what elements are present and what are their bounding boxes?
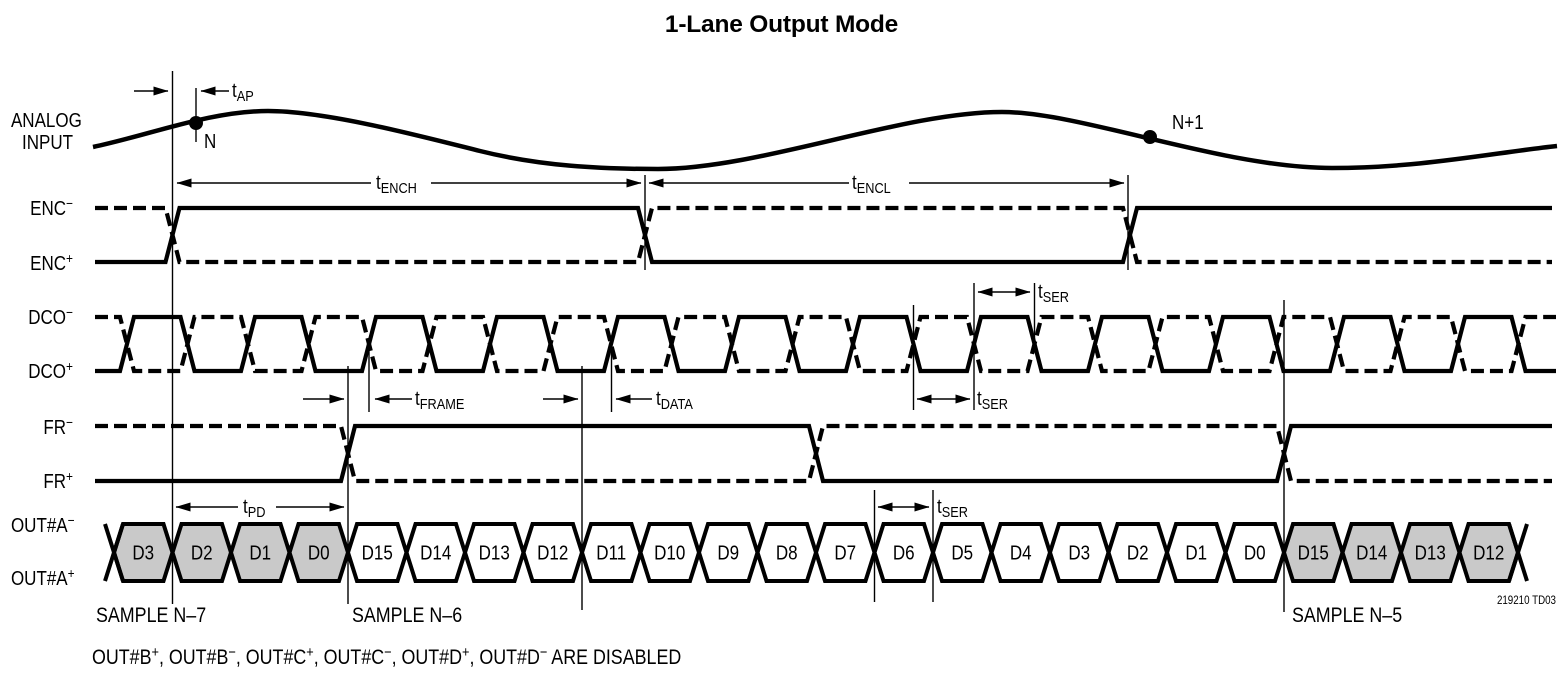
- bus-cell-label: D1: [1185, 541, 1207, 564]
- analog-waveform: [93, 111, 1557, 169]
- bus-cell-label: D3: [1068, 541, 1090, 564]
- note-superscript: +: [306, 644, 313, 661]
- signal-label-outa-minus: OUT#A−: [11, 513, 73, 540]
- bus-cell-label: D8: [776, 541, 798, 564]
- disabled-outputs-note: OUT#B+, OUT#B−, OUT#C+, OUT#C−, OUT#D+, …: [92, 646, 681, 672]
- bus-cell-label: D2: [191, 541, 213, 564]
- tframe-label: tFRAME: [415, 387, 464, 413]
- note-text: , OUT#C: [314, 646, 384, 669]
- signal-label-dco-minus: DCO−: [11, 305, 73, 332]
- signal-label-dco-plus: DCO+: [11, 359, 73, 386]
- note-superscript: +: [152, 644, 159, 661]
- bus-cell-label: D14: [1356, 541, 1387, 564]
- fr-minus-waveform: [95, 426, 1552, 481]
- bus-cell-label: D0: [308, 541, 330, 564]
- signal-label-fr-minus: FR−: [11, 415, 73, 442]
- signal-label-enc-minus: ENC−: [11, 196, 73, 223]
- bus-cell-label: D14: [420, 541, 451, 564]
- dimension-arrows: [134, 91, 1124, 507]
- tdata-label: tDATA: [656, 387, 693, 413]
- diagram-title: 1-Lane Output Mode: [0, 11, 1563, 39]
- signal-label-enc-plus: ENC+: [11, 251, 73, 278]
- out-a-bus: D3D2D1D0D15D14D13D12D11D10D9D8D7D6D5D4D3…: [105, 524, 1527, 581]
- figure-code: 219210 TD03: [1429, 595, 1557, 607]
- timing-diagram: D3D2D1D0D15D14D13D12D11D10D9D8D7D6D5D4D3…: [0, 0, 1563, 676]
- analog-input-label-line1: ANALOG: [11, 110, 73, 132]
- bus-cell-label: D9: [717, 541, 739, 564]
- tpd-label: tPD: [243, 495, 265, 521]
- bus-cell-label: D4: [1010, 541, 1032, 564]
- note-text: , OUT#D: [392, 646, 462, 669]
- note-text: , OUT#D: [469, 646, 539, 669]
- bus-cell-label: D15: [1298, 541, 1329, 564]
- note-superscript: −: [228, 644, 235, 661]
- bus-cell-label: D5: [951, 541, 973, 564]
- note-superscript: −: [540, 644, 547, 661]
- enc-minus-waveform: [95, 208, 1552, 262]
- bus-cell-label: D7: [834, 541, 856, 564]
- bus-cell-label: D15: [362, 541, 393, 564]
- note-text: OUT#B: [92, 646, 152, 669]
- sample-n7-label: SAMPLE N–7: [96, 604, 206, 628]
- bus-cell-label: D3: [132, 541, 154, 564]
- sample-n1-label: N+1: [1172, 111, 1204, 135]
- note-text: , OUT#C: [236, 646, 306, 669]
- analog-input-label: ANALOG INPUT: [11, 110, 73, 154]
- enc-plus-waveform: [95, 208, 1552, 262]
- sample-dot-n1: [1143, 130, 1157, 144]
- waveforms: [95, 208, 1556, 481]
- tap-label: tAP: [232, 79, 254, 105]
- bus-cell-label: D6: [893, 541, 915, 564]
- sample-n6-label: SAMPLE N–6: [352, 604, 462, 628]
- bus-cell-label: D0: [1244, 541, 1266, 564]
- note-superscript: −: [384, 644, 391, 661]
- signal-label-fr-plus: FR+: [11, 469, 73, 496]
- bus-cell-label: D1: [249, 541, 271, 564]
- tench-label: tENCH: [376, 171, 417, 197]
- bus-cell-label: D2: [1127, 541, 1149, 564]
- bus-cell-label: D12: [537, 541, 568, 564]
- tser2-label: tSER: [977, 387, 1008, 413]
- fr-plus-waveform: [95, 426, 1552, 481]
- bus-cell-label: D10: [654, 541, 685, 564]
- dco-plus-waveform: [95, 317, 1556, 371]
- note-text: ARE DISABLED: [547, 646, 681, 669]
- bus-cell-label: D13: [479, 541, 510, 564]
- bus-cell-label: D13: [1415, 541, 1446, 564]
- bus-cell-label: D12: [1473, 541, 1504, 564]
- analog-input-label-line2: INPUT: [11, 132, 73, 154]
- note-text: , OUT#B: [159, 646, 228, 669]
- note-superscript: +: [462, 644, 469, 661]
- tser1-label: tSER: [1038, 280, 1069, 306]
- sample-n5-label: SAMPLE N–5: [1292, 604, 1402, 628]
- tser3-label: tSER: [937, 495, 968, 521]
- signal-label-outa-plus: OUT#A+: [11, 566, 73, 593]
- sample-n-label: N: [204, 130, 216, 154]
- tencl-label: tENCL: [852, 171, 891, 197]
- bus-cell-label: D11: [596, 541, 626, 564]
- sample-dot-n: [189, 116, 203, 130]
